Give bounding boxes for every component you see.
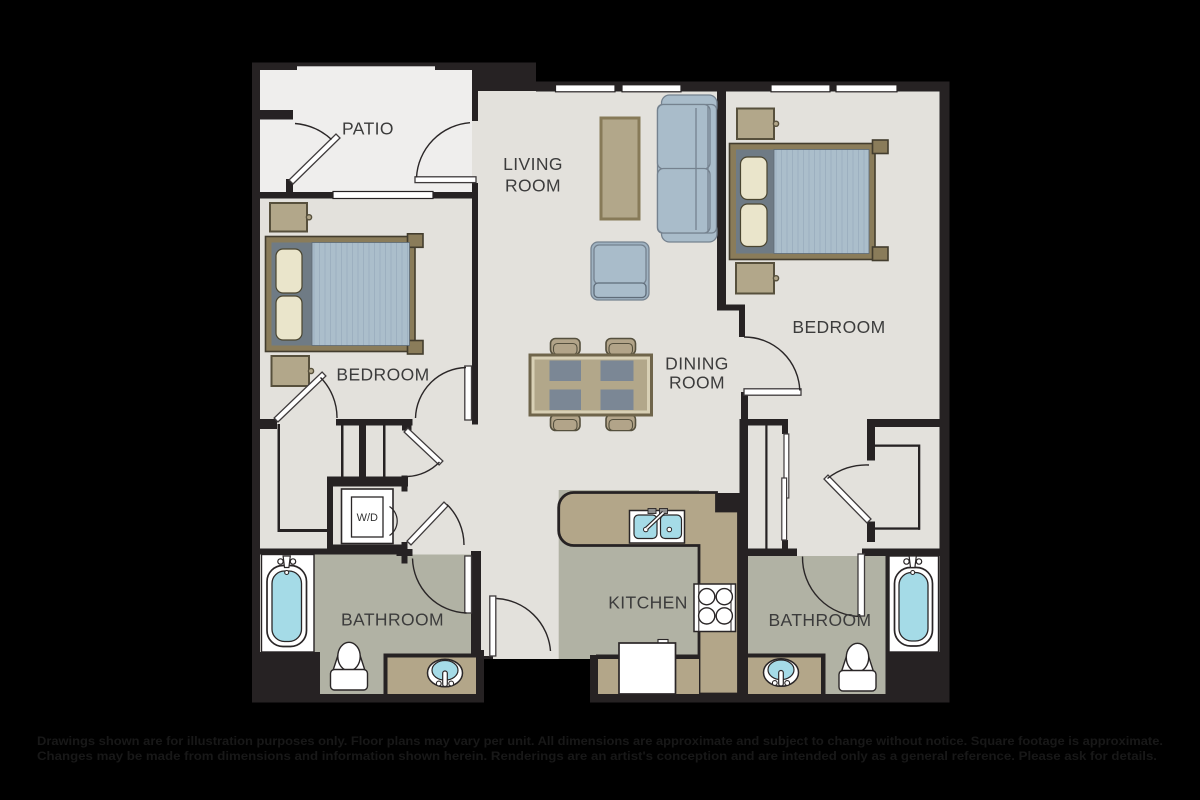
- svg-text:BATHROOM: BATHROOM: [768, 610, 871, 630]
- svg-text:LIVING: LIVING: [503, 154, 563, 174]
- svg-text:BEDROOM: BEDROOM: [792, 317, 885, 337]
- svg-text:PATIO: PATIO: [342, 119, 394, 139]
- svg-text:Drawings shown are for illustr: Drawings shown are for illustration purp…: [37, 736, 1163, 748]
- svg-text:Changes may be made from dimen: Changes may be made from dimensions and …: [37, 751, 1157, 763]
- svg-text:ROOM: ROOM: [505, 176, 561, 196]
- svg-text:W/D: W/D: [357, 512, 378, 524]
- svg-text:ROOM: ROOM: [669, 373, 725, 393]
- svg-text:BATHROOM: BATHROOM: [341, 610, 444, 630]
- svg-text:DINING: DINING: [665, 354, 729, 374]
- svg-text:BEDROOM: BEDROOM: [336, 365, 429, 385]
- svg-text:KITCHEN: KITCHEN: [608, 593, 688, 613]
